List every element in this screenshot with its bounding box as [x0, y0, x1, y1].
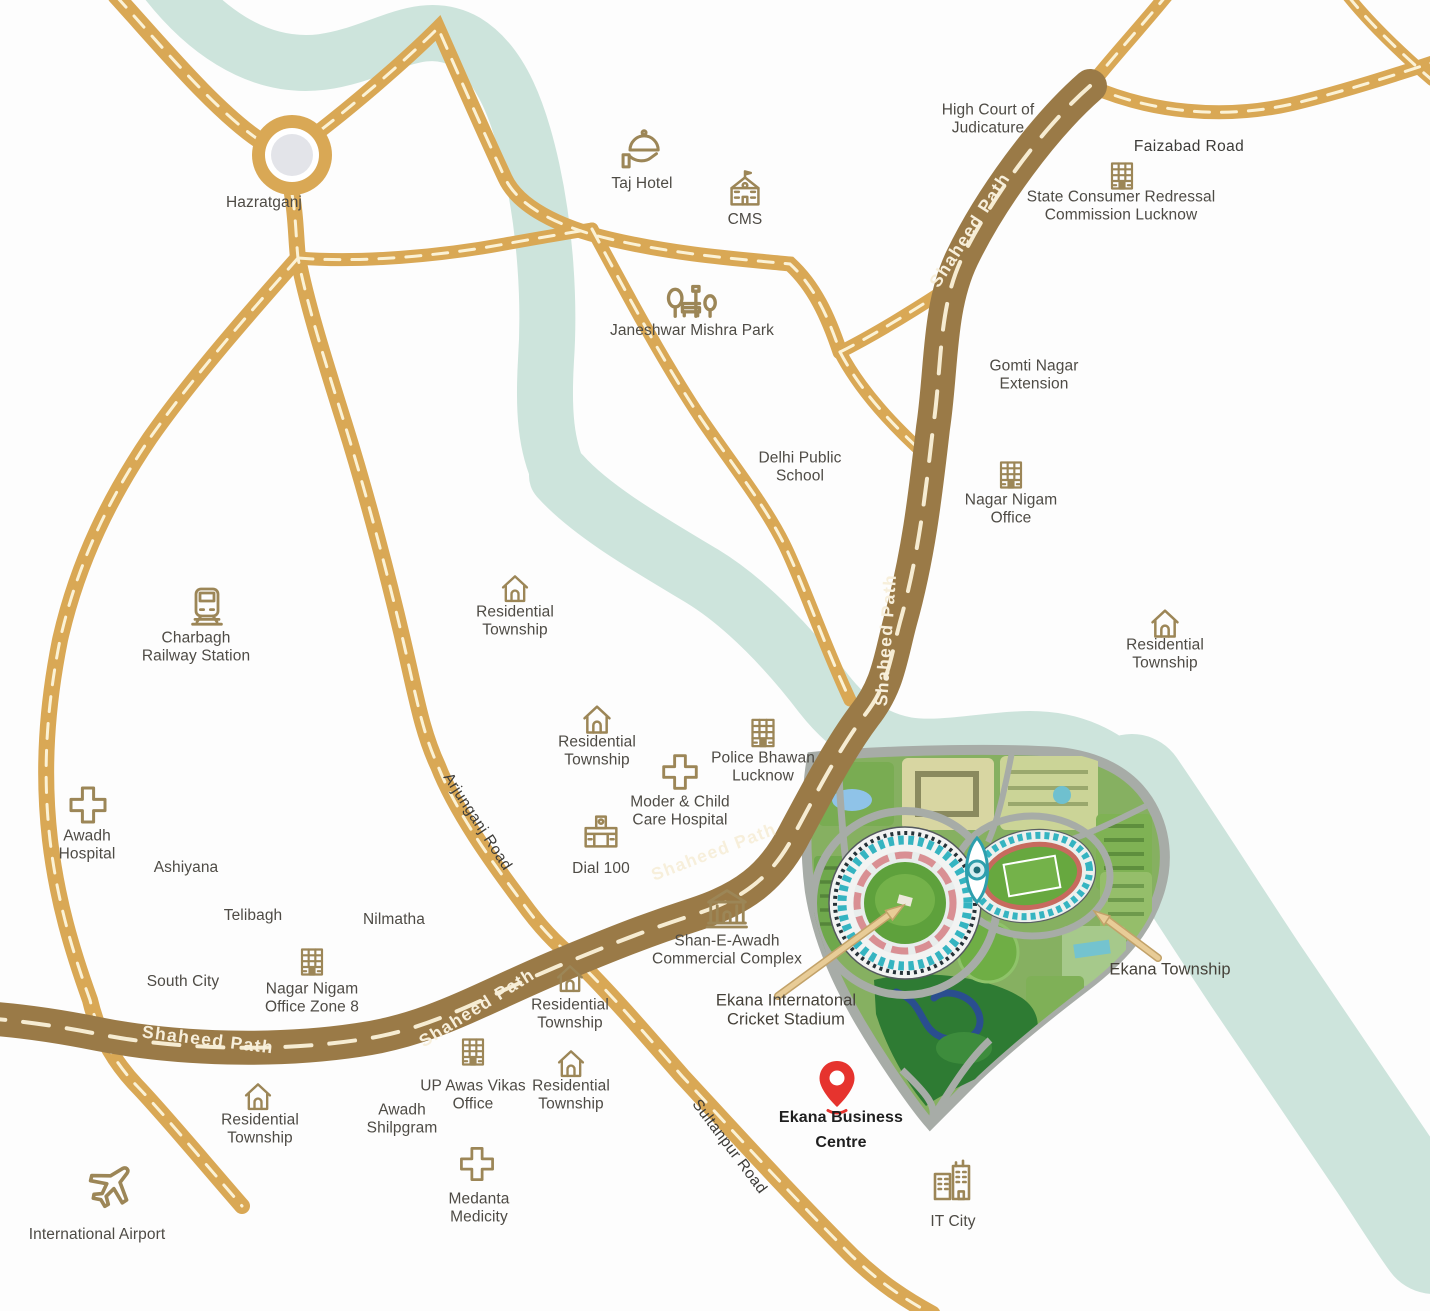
place-label-janeshwar-mishra-park: Janeshwar Mishra Park: [610, 322, 774, 340]
place-label-moder-child-hospital: Moder & Child Care Hospital: [630, 794, 730, 831]
city-buildings-icon: [928, 1158, 976, 1206]
cross-icon: [657, 749, 703, 795]
place-label-residential-township-north: Residential Township: [476, 604, 554, 641]
place-label-awadh-hospital: Awadh Hospital: [59, 828, 116, 865]
place-label-awadh-shilpgram: Awadh Shilpgram: [367, 1102, 438, 1139]
place-label-cms: CMS: [728, 211, 763, 229]
cricket-stadium-graphic: [829, 827, 981, 979]
place-label-ekana-business-centre: Ekana Business Centre: [779, 1106, 903, 1156]
location-map: Hazratganj Taj Hotel CMS High Court of J…: [0, 0, 1430, 1311]
classical-building-icon: [698, 883, 756, 935]
train-icon: [183, 583, 231, 631]
station-building-icon: [578, 809, 624, 855]
plane-icon: [83, 1159, 141, 1217]
place-label-residential-township-a: Residential Township: [531, 997, 609, 1034]
place-label-delhi-public-school: Delhi Public School: [758, 450, 841, 487]
place-label-it-city: IT City: [930, 1213, 975, 1231]
place-label-medanta-medicity: Medanta Medicity: [448, 1191, 509, 1228]
place-label-charbagh-railway-station: Charbagh Railway Station: [142, 630, 250, 667]
place-label-police-bhawan: Police Bhawan Lucknow: [711, 750, 815, 787]
place-label-residential-township-b: Residential Township: [532, 1078, 610, 1115]
place-label-nagar-nigam-office: Nagar Nigam Office: [965, 492, 1057, 529]
house-icon: [551, 960, 589, 998]
park-icon: [661, 276, 723, 328]
cross-icon: [64, 781, 112, 829]
place-label-shan-e-awadh: Shan-E-Awadh Commercial Complex: [652, 933, 802, 970]
place-label-taj-hotel: Taj Hotel: [611, 175, 672, 193]
house-icon: [496, 570, 534, 608]
place-label-nilmatha: Nilmatha: [363, 911, 425, 929]
place-label-nagar-nigam-zone8: Nagar Nigam Office Zone 8: [265, 981, 359, 1018]
house-icon: [239, 1078, 277, 1116]
place-label-ekana-cricket-stadium: Ekana Internatonal Cricket Stadium: [716, 992, 856, 1031]
school-icon: [722, 167, 768, 213]
place-label-residential-township-east: Residential Township: [1126, 637, 1204, 674]
place-label-south-city: South City: [147, 973, 220, 991]
place-label-dial-100: Dial 100: [572, 860, 630, 878]
eye-plaza-graphic: [966, 838, 987, 902]
place-label-international-airport: International Airport: [29, 1226, 166, 1244]
place-label-hazratganj: Hazratganj: [226, 194, 302, 212]
cross-icon: [455, 1142, 499, 1186]
office-building-icon: [292, 942, 332, 982]
office-building-icon: [742, 712, 784, 754]
cloche-icon: [617, 124, 669, 176]
place-label-gomti-nagar-extension: Gomti Nagar Extension: [990, 358, 1079, 395]
office-building-icon: [453, 1032, 493, 1072]
place-label-telibagh: Telibagh: [224, 907, 283, 925]
road-label-faizabad-road: Faizabad Road: [1134, 138, 1244, 156]
place-label-residential-township-sw: Residential Township: [221, 1112, 299, 1149]
place-label-state-consumer: State Consumer Redressal Commission Luck…: [1027, 189, 1215, 226]
place-label-residential-township-mid: Residential Township: [558, 734, 636, 771]
hazratganj-roundabout: [252, 115, 332, 195]
place-label-ashiyana: Ashiyana: [154, 859, 219, 877]
place-label-ekana-township: Ekana Township: [1109, 960, 1230, 979]
office-building-icon: [991, 455, 1031, 495]
place-label-high-court: High Court of Judicature: [942, 102, 1035, 139]
